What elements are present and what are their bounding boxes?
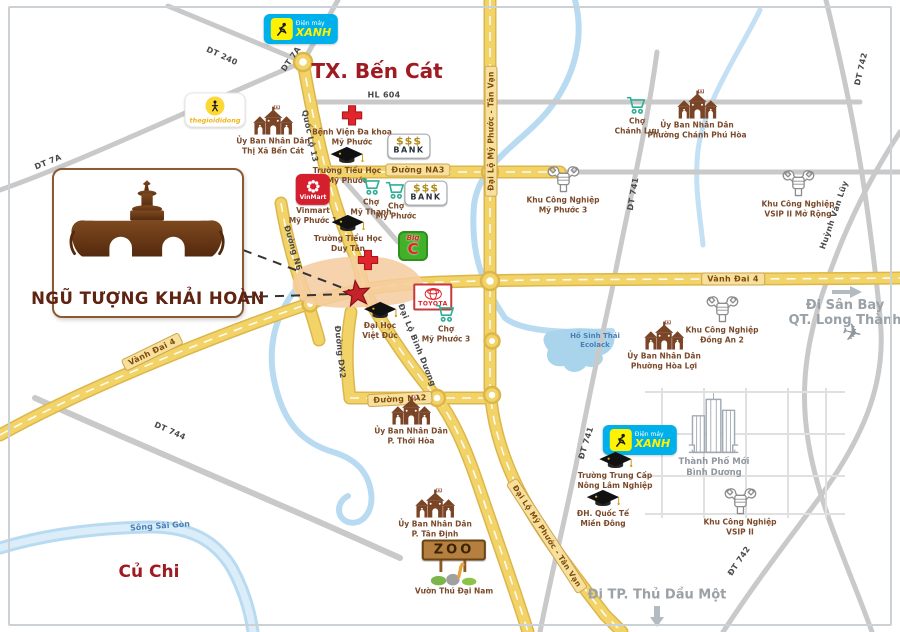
- industry-icon: [702, 294, 742, 324]
- dmx-yellow-square: [610, 429, 632, 451]
- vinmart-logo: VinMart: [296, 174, 330, 205]
- poi-label: Khu Công NghiệpĐồng An 2: [685, 325, 758, 345]
- tgdd-circle: [206, 97, 225, 116]
- poi-dmx-top: Điện máyXANH: [264, 14, 338, 44]
- ubnd-building-icon: [644, 320, 684, 350]
- dienmayxanh-logo: Điện máyXANH: [264, 14, 338, 44]
- industry-icon: [778, 168, 818, 198]
- lake-label: Hồ Sinh Thái Ecolack: [570, 332, 620, 350]
- poi-label: Khu Công NghiệpMỹ Phước 3: [526, 195, 599, 215]
- market-cart-icon: [386, 180, 406, 200]
- poi-ubnd-thoi-hoa: Ủy Ban Nhân DânP. Thới Hòa: [374, 395, 448, 446]
- road-label-vanh-dai-4-e: Vành Đai 4: [701, 273, 765, 286]
- bank-sign: $$$BANK: [387, 134, 430, 159]
- poi-label: Đại HọcViệt Đức: [362, 321, 398, 341]
- toyota-emblem-icon: [424, 288, 442, 301]
- poi-kcn-vsip-2-mo-rong: Khu Công NghiệpVSIP II Mở Rộng: [761, 168, 834, 219]
- thu-dau-mot-arrow-icon: [650, 606, 664, 628]
- runner-icon: [613, 433, 628, 448]
- ubnd-building-icon: [391, 395, 431, 425]
- airport-direction-line1: Đi Sân Bay: [806, 298, 885, 313]
- graduation-cap-icon: [363, 301, 397, 320]
- ubnd-building-icon: [677, 89, 717, 119]
- road-label-hl-604: HL 604: [367, 91, 400, 100]
- poi-label: Khu Công NghiệpVSIP II Mở Rộng: [761, 199, 834, 219]
- project-logo-box: NGŨ TƯỢNG KHẢI HOÀN: [52, 168, 244, 318]
- poi-label: Bệnh Viện Đa khoaMỹ Phước: [312, 127, 392, 147]
- poi-label: Khu Công NghiệpVSIP II: [703, 517, 776, 537]
- poi-ubnd-ben-cat: Ủy Ban Nhân DânThị Xã Bến Cát: [236, 105, 310, 156]
- runner-icon: [274, 22, 289, 37]
- poi-ubnd-chanh-phu-hoa: Ủy Ban Nhân DânPhường Chánh Phú Hòa: [647, 89, 746, 140]
- thu-dau-mot-direction-label: Đi TP. Thủ Dầu Một: [588, 589, 727, 604]
- poi-label: Ủy Ban Nhân DânP. Tân Định: [398, 519, 472, 539]
- graduation-cap-icon: [330, 146, 364, 165]
- poi-zoo: ZOOVườn Thú Đại Nam: [415, 539, 493, 596]
- region-label-cu-chi: Củ Chi: [119, 562, 180, 582]
- road-label-dlmptv-n: Đại Lộ Mỹ Phước - Tân Vạn: [485, 65, 498, 196]
- medical-cross-icon: [341, 104, 363, 126]
- ubnd-building-icon: [415, 488, 455, 518]
- city-skyline-icon: [688, 392, 740, 456]
- medical-cross-icon: [357, 249, 379, 271]
- poi-benh-vien-my-phuoc: Bệnh Viện Đa khoaMỹ Phước: [312, 104, 392, 147]
- poi-thanh-pho-moi: Thành Phố MớiBình Dương: [679, 392, 750, 480]
- poi-label: Vườn Thú Đại Nam: [415, 586, 493, 596]
- poi-bank-1: $$$BANK: [387, 134, 430, 159]
- industry-icon: [543, 164, 583, 194]
- airport-direction-arrow-icon: [832, 286, 862, 298]
- zoo-sign: ZOO: [422, 539, 487, 585]
- poi-label: Ủy Ban Nhân DânP. Thới Hòa: [374, 426, 448, 446]
- poi-dh-quoc-te-mien-dong: ĐH. Quốc TếMiền Đông: [577, 489, 629, 529]
- poi-truong-trung-cap: Trường Trung CấpNông Lâm Nghiệp: [577, 451, 652, 491]
- poi-kcn-vsip-2: Khu Công NghiệpVSIP II: [703, 486, 776, 537]
- lake-label-line1: Hồ Sinh Thái: [570, 332, 620, 340]
- map-canvas: TX. Bến Cát Củ Chi Sông Sài Gòn Hồ Sinh …: [0, 0, 900, 632]
- monument-graphic: [68, 178, 228, 270]
- poi-kcn-my-phuoc-3: Khu Công NghiệpMỹ Phước 3: [526, 164, 599, 215]
- zoo-animals-icon: [431, 560, 477, 585]
- poi-kcn-dong-an-2: Khu Công NghiệpĐồng An 2: [685, 294, 758, 345]
- poi-label: Ủy Ban Nhân DânThị Xã Bến Cát: [236, 136, 310, 156]
- market-cart-icon: [627, 95, 647, 115]
- ubnd-building-icon: [253, 105, 293, 135]
- poi-label: Ủy Ban Nhân DânPhường Hòa Lợi: [627, 351, 701, 371]
- poi-dh-viet-duc: Đại HọcViệt Đức: [362, 301, 398, 341]
- poi-label: ĐH. Quốc TếMiền Đông: [577, 509, 629, 529]
- poi-medical-cross-2: [357, 249, 379, 271]
- walker-icon: [209, 100, 222, 113]
- poi-label: Thành Phố MớiBình Dương: [679, 457, 750, 480]
- lake-label-line2: Ecolack: [580, 341, 610, 349]
- project-title: NGŨ TƯỢNG KHẢI HOÀN: [31, 289, 265, 308]
- poi-cho-my-phuoc-3: ChợMỹ Phước 3: [422, 303, 471, 344]
- market-cart-icon: [436, 303, 456, 323]
- graduation-cap-icon: [598, 451, 632, 470]
- region-label-ben-cat: TX. Bến Cát: [311, 59, 442, 83]
- dmx-yellow-square: [271, 18, 293, 40]
- graduation-cap-icon: [331, 214, 365, 233]
- poi-big-c: BigC: [398, 231, 428, 261]
- industry-icon: [720, 486, 760, 516]
- bigc-logo: BigC: [398, 231, 428, 261]
- poi-label: ChợMỹ Phước 3: [422, 324, 471, 344]
- poi-ubnd-tan-dinh: Ủy Ban Nhân DânP. Tân Định: [398, 488, 472, 539]
- vinmart-flower-icon: [305, 178, 320, 193]
- graduation-cap-icon: [586, 489, 620, 508]
- poi-label: Ủy Ban Nhân DânPhường Chánh Phú Hòa: [647, 120, 746, 140]
- road-label-duong-na3: Đường NA3: [385, 164, 450, 177]
